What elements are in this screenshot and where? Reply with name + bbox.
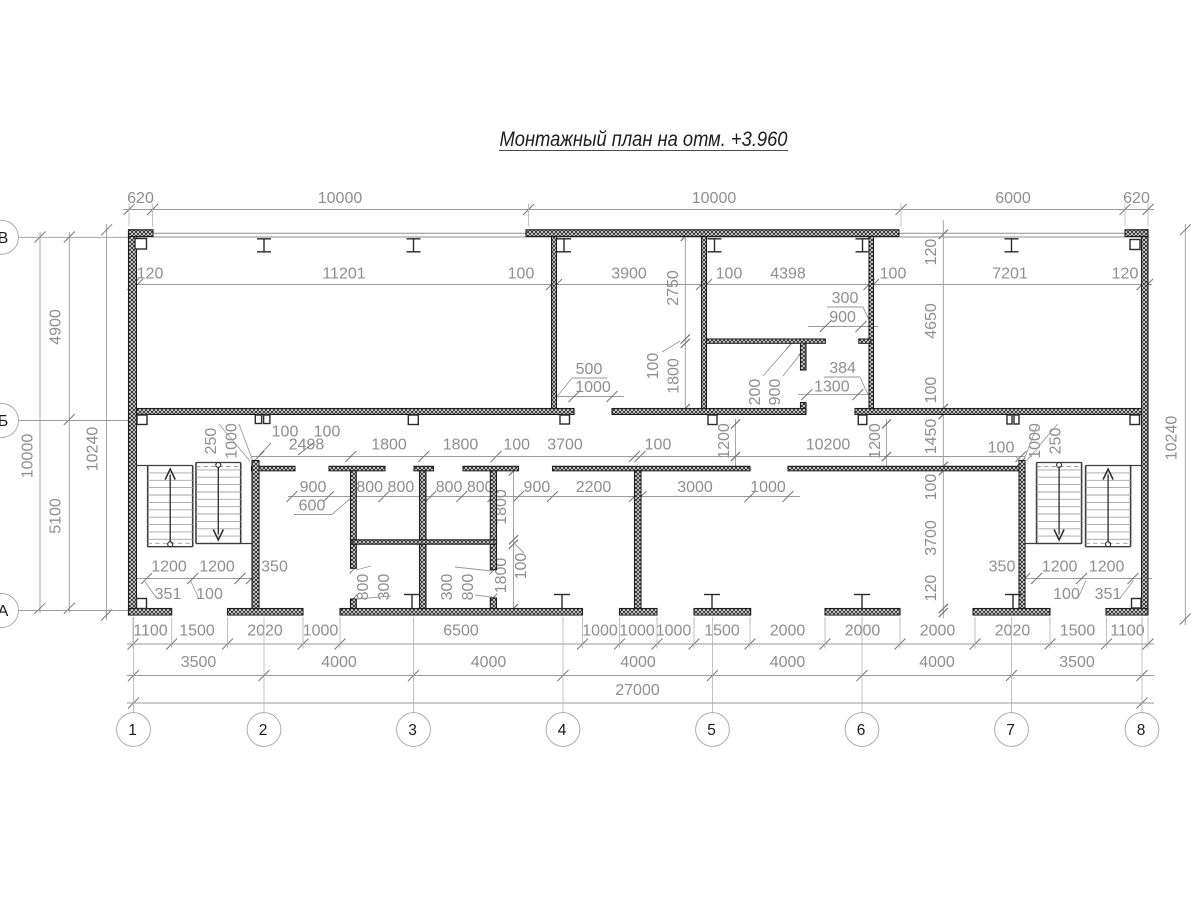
svg-text:2: 2 xyxy=(259,722,268,739)
svg-text:351: 351 xyxy=(1095,586,1122,603)
svg-text:1500: 1500 xyxy=(704,623,740,640)
svg-text:100: 100 xyxy=(314,424,341,441)
svg-text:1100: 1100 xyxy=(133,623,168,640)
svg-text:10200: 10200 xyxy=(806,437,851,454)
svg-text:1300: 1300 xyxy=(814,379,850,396)
svg-text:2000: 2000 xyxy=(920,623,956,640)
svg-text:800: 800 xyxy=(356,479,383,496)
svg-text:350: 350 xyxy=(261,559,288,576)
svg-text:100: 100 xyxy=(513,553,530,580)
svg-text:В: В xyxy=(0,230,8,247)
svg-text:1800: 1800 xyxy=(371,437,407,454)
svg-text:1000: 1000 xyxy=(303,623,339,640)
svg-text:100: 100 xyxy=(1053,586,1080,603)
svg-text:100: 100 xyxy=(508,266,535,283)
svg-text:1450: 1450 xyxy=(923,419,940,455)
svg-text:3500: 3500 xyxy=(181,654,217,671)
svg-text:3700: 3700 xyxy=(923,520,940,556)
svg-text:4: 4 xyxy=(558,722,567,739)
svg-text:900: 900 xyxy=(767,379,784,406)
svg-text:100: 100 xyxy=(923,377,940,404)
svg-text:120: 120 xyxy=(137,266,164,283)
svg-text:300: 300 xyxy=(439,574,456,601)
svg-text:900: 900 xyxy=(829,309,856,326)
svg-text:10000: 10000 xyxy=(692,190,737,207)
svg-text:10000: 10000 xyxy=(20,434,37,479)
svg-text:900: 900 xyxy=(524,479,551,496)
svg-text:1200: 1200 xyxy=(867,423,884,459)
svg-text:620: 620 xyxy=(1123,190,1150,207)
svg-text:4000: 4000 xyxy=(919,654,955,671)
svg-text:100: 100 xyxy=(923,474,940,501)
svg-text:1200: 1200 xyxy=(1089,559,1125,576)
svg-text:2020: 2020 xyxy=(247,623,283,640)
svg-text:А: А xyxy=(0,603,9,620)
svg-text:5100: 5100 xyxy=(48,498,65,534)
svg-text:7201: 7201 xyxy=(992,266,1028,283)
svg-text:350: 350 xyxy=(989,559,1016,576)
svg-text:6500: 6500 xyxy=(443,623,479,640)
svg-text:1200: 1200 xyxy=(1042,559,1078,576)
svg-text:3000: 3000 xyxy=(677,479,713,496)
svg-text:10240: 10240 xyxy=(1164,416,1181,461)
svg-text:1500: 1500 xyxy=(1060,623,1096,640)
svg-text:300: 300 xyxy=(832,290,859,307)
svg-text:3: 3 xyxy=(408,722,417,739)
svg-text:6000: 6000 xyxy=(995,190,1031,207)
svg-text:800: 800 xyxy=(467,479,494,496)
svg-text:200: 200 xyxy=(747,379,764,406)
svg-text:2000: 2000 xyxy=(770,623,806,640)
svg-text:1000: 1000 xyxy=(619,623,655,640)
svg-text:100: 100 xyxy=(503,437,530,454)
svg-text:Монтажный план на отм. +3.960: Монтажный план на отм. +3.960 xyxy=(500,127,788,151)
svg-text:1000: 1000 xyxy=(582,623,618,640)
svg-text:2020: 2020 xyxy=(995,623,1031,640)
svg-text:1000: 1000 xyxy=(575,379,611,396)
svg-text:27000: 27000 xyxy=(615,682,660,699)
svg-text:100: 100 xyxy=(645,353,662,380)
svg-text:100: 100 xyxy=(716,266,743,283)
svg-text:4000: 4000 xyxy=(321,654,357,671)
svg-text:120: 120 xyxy=(1112,266,1139,283)
svg-text:1000: 1000 xyxy=(656,623,692,640)
svg-text:1800: 1800 xyxy=(665,358,682,394)
svg-text:500: 500 xyxy=(576,361,603,378)
svg-text:100: 100 xyxy=(272,424,299,441)
svg-text:1200: 1200 xyxy=(199,559,235,576)
svg-text:3500: 3500 xyxy=(1059,654,1095,671)
svg-text:1100: 1100 xyxy=(1110,623,1145,640)
svg-text:100: 100 xyxy=(196,586,223,603)
svg-text:2750: 2750 xyxy=(665,270,682,306)
svg-text:4900: 4900 xyxy=(48,309,65,345)
svg-text:1000: 1000 xyxy=(224,423,241,459)
svg-text:1800: 1800 xyxy=(443,437,479,454)
svg-text:100: 100 xyxy=(645,437,672,454)
svg-text:100: 100 xyxy=(880,266,907,283)
svg-text:Б: Б xyxy=(0,413,8,430)
svg-text:6: 6 xyxy=(857,722,866,739)
svg-text:120: 120 xyxy=(923,575,940,602)
svg-text:5: 5 xyxy=(707,722,716,739)
svg-text:351: 351 xyxy=(155,586,182,603)
svg-text:800: 800 xyxy=(436,479,463,496)
svg-text:1000: 1000 xyxy=(750,479,786,496)
svg-text:250: 250 xyxy=(203,428,220,455)
svg-text:600: 600 xyxy=(299,498,326,515)
svg-text:2200: 2200 xyxy=(576,479,612,496)
svg-text:3700: 3700 xyxy=(547,437,583,454)
svg-text:384: 384 xyxy=(829,360,856,377)
svg-text:7: 7 xyxy=(1006,722,1015,739)
svg-text:3900: 3900 xyxy=(611,266,647,283)
svg-text:4000: 4000 xyxy=(620,654,656,671)
svg-text:4000: 4000 xyxy=(471,654,507,671)
svg-text:4398: 4398 xyxy=(770,266,806,283)
svg-text:8: 8 xyxy=(1137,722,1146,739)
svg-text:800: 800 xyxy=(460,574,477,601)
svg-text:800: 800 xyxy=(355,574,372,601)
svg-text:1500: 1500 xyxy=(179,623,215,640)
svg-text:11201: 11201 xyxy=(322,266,365,283)
svg-text:4650: 4650 xyxy=(923,303,940,339)
svg-text:10000: 10000 xyxy=(318,190,363,207)
svg-text:620: 620 xyxy=(127,190,154,207)
svg-text:250: 250 xyxy=(1048,428,1065,455)
svg-text:120: 120 xyxy=(923,239,940,266)
svg-text:2000: 2000 xyxy=(845,623,881,640)
svg-text:900: 900 xyxy=(300,479,327,496)
svg-text:1: 1 xyxy=(128,722,137,739)
svg-text:100: 100 xyxy=(988,440,1015,457)
svg-text:1200: 1200 xyxy=(151,559,187,576)
svg-text:10240: 10240 xyxy=(85,427,102,472)
svg-text:1200: 1200 xyxy=(716,423,733,459)
svg-text:800: 800 xyxy=(388,479,415,496)
svg-text:4000: 4000 xyxy=(770,654,806,671)
